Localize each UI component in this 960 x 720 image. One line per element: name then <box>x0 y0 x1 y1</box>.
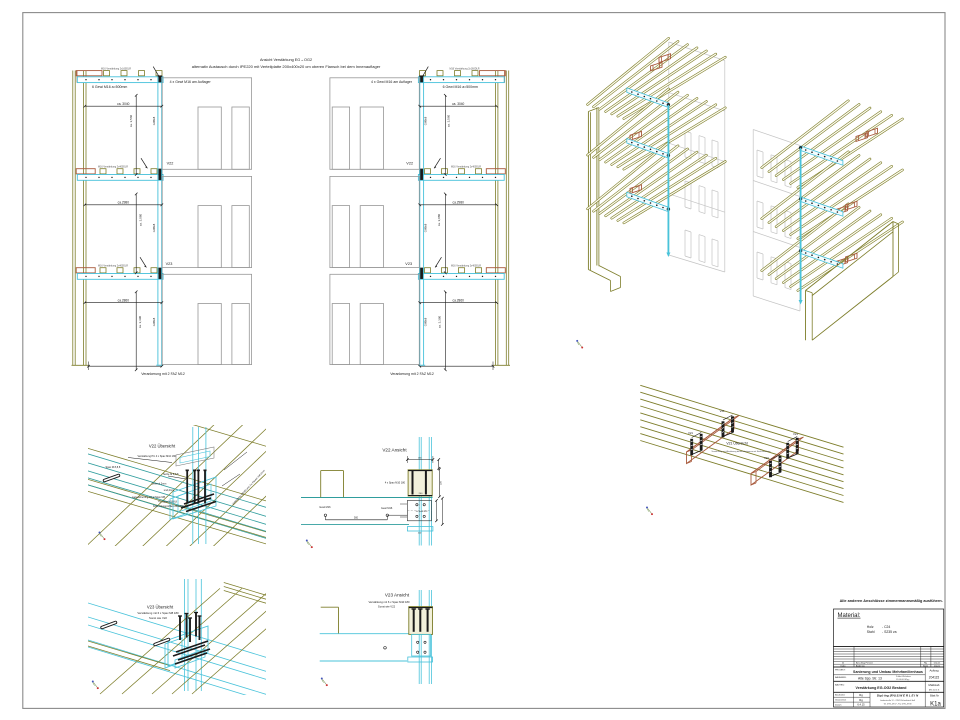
svg-text:4 x Spax M10 180: 4 x Spax M10 180 <box>385 482 406 485</box>
svg-text:Anschlag Fenster: Anschlag Fenster <box>856 662 873 665</box>
svg-text:- S235 va: - S235 va <box>882 630 897 634</box>
svg-text:- C24: - C24 <box>882 625 890 629</box>
svg-text:Rg: Rg <box>859 698 863 702</box>
svg-text:V23 Ansicht: V23 Ansicht <box>385 593 410 598</box>
svg-text:Lindenstraße 12 - 74523 Schwäb: Lindenstraße 12 - 74523 Schwäbisch Hall <box>880 699 916 702</box>
svg-text:6.4.15: 6.4.15 <box>857 703 865 707</box>
svg-text:Sonst wie V22: Sonst wie V22 <box>149 616 167 620</box>
svg-text:V21 Übersicht: V21 Übersicht <box>726 442 747 446</box>
svg-text:GM8x8: GM8x8 <box>424 116 428 125</box>
svg-text:GM8x8: GM8x8 <box>152 116 156 125</box>
svg-text:V23: V23 <box>405 262 412 266</box>
svg-text:Verstärkung mit 6 x Spax M8 18: Verstärkung mit 6 x Spax M8 180 <box>137 611 179 615</box>
svg-text:M16 Verstärkung 2x160DLR: M16 Verstärkung 2x160DLR <box>449 68 479 71</box>
svg-text:und,2mm: und,2mm <box>164 489 174 492</box>
svg-text:ca. 3040: ca. 3040 <box>452 102 464 106</box>
svg-text:GM8x8: GM8x8 <box>152 317 156 326</box>
svg-text:V21: V21 <box>793 432 798 436</box>
svg-text:4 x Gewi M16 am Auflager: 4 x Gewi M16 am Auflager <box>170 80 212 84</box>
svg-text:M16 Verstärkung 2x160DLR: M16 Verstärkung 2x160DLR <box>101 68 131 71</box>
svg-text:Dreieck 2mm: Dreieck 2mm <box>152 483 167 486</box>
svg-text:M16 Verstärkung 2x400DLR: M16 Verstärkung 2x400DLR <box>98 166 128 169</box>
svg-text:alternativ Austausch durch IPE: alternativ Austausch durch IPE220 mit Ve… <box>192 64 381 69</box>
svg-text:ca.2980: ca.2980 <box>118 201 130 205</box>
svg-text:V22: V22 <box>406 162 413 166</box>
svg-text:Kopf, Flussprofilen 200x200x20: Kopf, Flussprofilen 200x200x20 <box>153 505 189 508</box>
svg-text:V21: V21 <box>720 409 725 413</box>
svg-text:ca. 3040: ca. 3040 <box>117 102 129 106</box>
svg-text:Gezeichnet: Gezeichnet <box>835 699 846 702</box>
svg-text:K1a: K1a <box>930 702 941 708</box>
svg-text:ca. 3,080: ca. 3,080 <box>139 213 143 226</box>
svg-text:204115: 204115 <box>929 676 940 680</box>
svg-text:Holz: Holz <box>867 625 874 629</box>
svg-text:ca. 3,390: ca. 3,390 <box>138 315 142 328</box>
svg-text:ca.2980: ca.2980 <box>453 201 465 205</box>
svg-text:4 x Spax M 8,8,8: 4 x Spax M 8,8,8 <box>158 501 177 504</box>
svg-text:M16 Verstärkung 2x400DLR: M16 Verstärkung 2x400DLR <box>98 265 128 268</box>
svg-text:ca. 3,390: ca. 3,390 <box>438 315 442 328</box>
svg-text:6 Gewi M16 a=500mm: 6 Gewi M16 a=500mm <box>443 85 478 89</box>
svg-text:GM8x8: GM8x8 <box>424 317 428 326</box>
svg-text:4 x Gewi M16: 4 x Gewi M16 <box>416 511 428 513</box>
svg-text:ca. 3,080: ca. 3,080 <box>437 213 441 226</box>
svg-text:Datum: Datum <box>835 703 842 706</box>
svg-text:V23: V23 <box>166 262 173 266</box>
svg-text:Rg: Rg <box>859 693 863 697</box>
svg-text:ca.2860: ca.2860 <box>453 298 465 302</box>
svg-text:Verstärkung PU 4 x Spax M10 18: Verstärkung PU 4 x Spax M10 180 <box>138 455 177 458</box>
svg-text:Sanierung und Umbau Mehrfamili: Sanierung und Umbau Mehrfamilienhaus <box>853 670 923 674</box>
svg-text:Setze M 8,8,8: Setze M 8,8,8 <box>163 473 179 476</box>
svg-text:M 1:10 1:5: M 1:10 1:5 <box>929 690 940 692</box>
svg-text:6 Gewi M16 a=500mm: 6 Gewi M16 a=500mm <box>92 85 127 89</box>
svg-text:Material:: Material: <box>838 613 861 619</box>
svg-text:V21: V21 <box>764 456 769 460</box>
svg-text:Gewi M16: Gewi M16 <box>319 506 331 509</box>
svg-text:Zuffert Wohnbau: Zuffert Wohnbau <box>896 675 911 678</box>
svg-text:Verankerung mit 2 FAZ M12: Verankerung mit 2 FAZ M12 <box>141 372 185 376</box>
svg-text:Tel. 0791-49 67 - Fax 0791-49: Tel. 0791-49 67 - Fax 0791-49 68 <box>884 704 912 706</box>
svg-text:BAUTEIL:: BAUTEIL: <box>835 684 845 687</box>
svg-text:12.04.06 Whg...: 12.04.06 Whg... <box>896 679 911 681</box>
svg-text:V22 Ansicht: V22 Ansicht <box>382 448 407 453</box>
svg-text:Verstärkung mit 6 x Spax M10 1: Verstärkung mit 6 x Spax M10 180 <box>368 600 410 604</box>
svg-text:BAUHERR:: BAUHERR: <box>835 676 847 679</box>
svg-text:ca.2860: ca.2860 <box>118 298 130 302</box>
svg-text:ca. 3,560: ca. 3,560 <box>447 114 451 127</box>
svg-text:Stahl: Stahl <box>867 630 875 634</box>
svg-text:PROJEKT:: PROJEKT: <box>835 669 846 671</box>
svg-text:M16 Verstärkung 2x400DLR: M16 Verstärkung 2x400DLR <box>451 265 481 268</box>
svg-text:M16 Verstärkung 2x400DLR: M16 Verstärkung 2x400DLR <box>451 166 481 169</box>
svg-text:Dipl.-Ing (FH) S.W E R L E I N: Dipl.-Ing (FH) S.W E R L E I N <box>877 693 919 697</box>
svg-text:V22 Übersicht: V22 Übersicht <box>149 444 176 449</box>
svg-text:Alle anderen Anschlüsse zimmer: Alle anderen Anschlüsse zimmermannsmäßig… <box>840 599 943 603</box>
svg-text:Blatt Nr: Blatt Nr <box>930 694 939 698</box>
svg-text:Bearbeiter: Bearbeiter <box>835 694 845 697</box>
svg-text:500: 500 <box>354 517 359 520</box>
svg-text:Auftrag: Auftrag <box>929 669 938 673</box>
svg-text:V22: V22 <box>167 162 174 166</box>
svg-text:Datum: Datum <box>934 662 941 665</box>
svg-text:Verankerung mit 2 FAZ M12: Verankerung mit 2 FAZ M12 <box>390 372 434 376</box>
svg-text:Spax M 8,8,8: Spax M 8,8,8 <box>106 466 121 469</box>
svg-text:V21: V21 <box>688 431 693 435</box>
svg-text:Verstärkung EG-OG2 Bestand: Verstärkung EG-OG2 Bestand <box>856 686 907 690</box>
svg-text:Ansicht Verstärkung EG→OG2: Ansicht Verstärkung EG→OG2 <box>260 58 312 62</box>
svg-text:ca. 3,560: ca. 3,560 <box>129 114 133 127</box>
svg-text:Sonst wie V22: Sonst wie V22 <box>378 605 396 609</box>
svg-text:Lagesicherung mit 2 Spax M8: Lagesicherung mit 2 Spax M8 <box>132 496 166 499</box>
svg-text:Gewi M16: Gewi M16 <box>381 507 393 510</box>
svg-text:4 x Gewi M16 am Auflager: 4 x Gewi M16 am Auflager <box>371 80 413 84</box>
svg-text:Maßstab: Maßstab <box>929 683 940 687</box>
svg-text:GM8x8: GM8x8 <box>152 223 156 232</box>
svg-text:Alte Spp. Str. 13: Alte Spp. Str. 13 <box>858 677 882 681</box>
svg-text:GM8x8: GM8x8 <box>424 223 428 232</box>
svg-text:Verstärkung mit, Abstützung da: Verstärkung mit, Abstützung darauf absti… <box>711 450 770 453</box>
svg-text:V23 Übersicht: V23 Übersicht <box>147 605 174 610</box>
